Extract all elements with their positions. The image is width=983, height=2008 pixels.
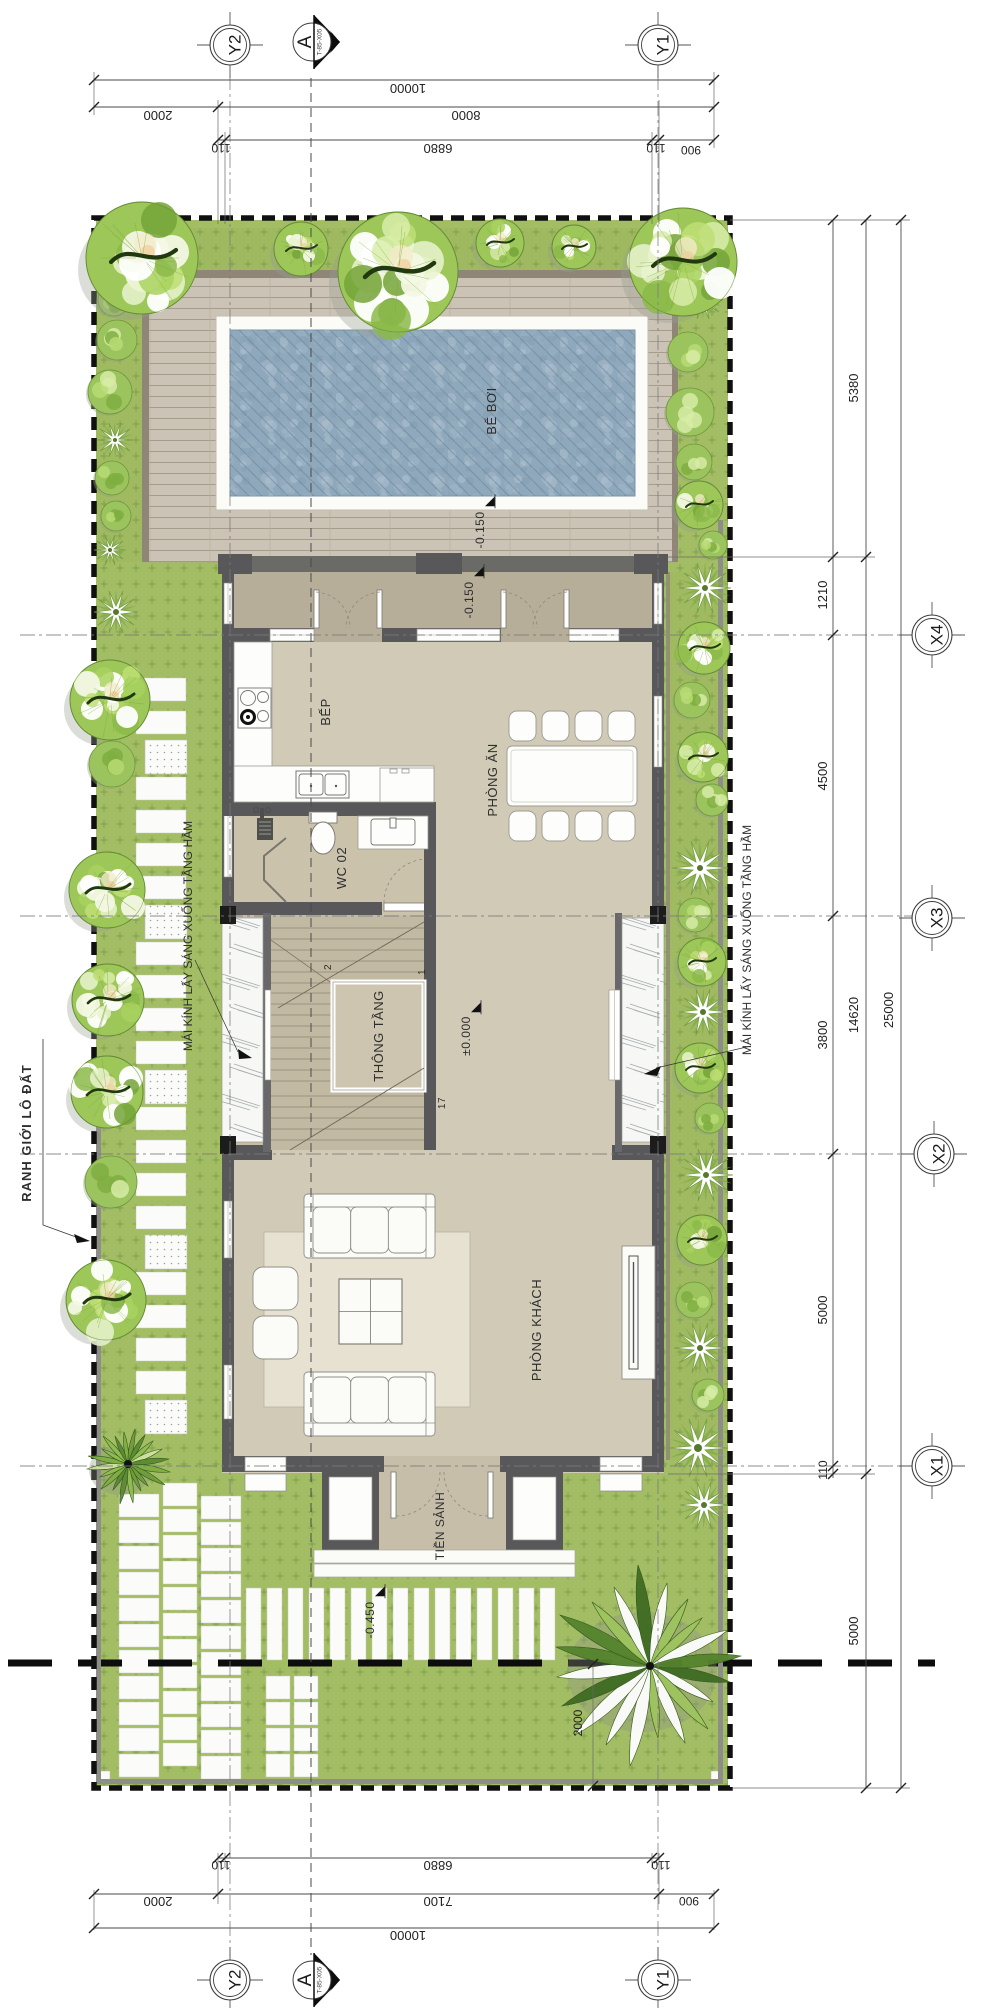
svg-text:Y1: Y1 [653, 1970, 672, 1991]
svg-text:RANH GIỚI LÔ ĐẤT: RANH GIỚI LÔ ĐẤT [19, 1064, 34, 1202]
svg-text:110: 110 [211, 1858, 230, 1872]
svg-text:10000: 10000 [390, 1928, 426, 1943]
svg-text:10000: 10000 [390, 81, 426, 96]
svg-text:A: A [295, 35, 316, 48]
svg-text:2000: 2000 [144, 108, 173, 123]
svg-text:2: 2 [323, 964, 334, 970]
svg-text:5380: 5380 [846, 374, 861, 403]
svg-text:2000: 2000 [571, 1709, 585, 1736]
svg-text:A: A [295, 1973, 316, 1986]
svg-text:110: 110 [816, 1460, 830, 1479]
svg-text:-0.150: -0.150 [462, 581, 476, 618]
svg-text:X2: X2 [929, 1144, 948, 1165]
svg-text:±0.000: ±0.000 [459, 1016, 473, 1056]
svg-text:Y1: Y1 [653, 35, 672, 56]
svg-text:110: 110 [211, 141, 230, 155]
svg-text:PHÒNG ĂN: PHÒNG ĂN [485, 743, 500, 816]
svg-text:1: 1 [417, 969, 428, 975]
svg-text:X4: X4 [927, 625, 946, 646]
svg-text:900: 900 [681, 143, 701, 157]
svg-text:PHÒNG KHÁCH: PHÒNG KHÁCH [529, 1279, 544, 1381]
svg-text:TIỀN SẢNH: TIỀN SẢNH [432, 1492, 447, 1561]
svg-text:-0.450: -0.450 [363, 1601, 377, 1638]
svg-text:110: 110 [651, 1858, 670, 1872]
svg-text:3800: 3800 [815, 1021, 830, 1050]
svg-text:MÁI KÍNH LẤY SÁNG XUỐNG TẦNG H: MÁI KÍNH LẤY SÁNG XUỐNG TẦNG HẦM [180, 821, 195, 1051]
svg-text:X1: X1 [927, 1456, 946, 1477]
svg-text:4500: 4500 [815, 762, 830, 791]
svg-text:6880: 6880 [424, 1858, 453, 1873]
svg-text:MÁI KÍNH LẤY SÁNG XUỐNG TẦNG H: MÁI KÍNH LẤY SÁNG XUỐNG TẦNG HẦM [739, 825, 754, 1055]
svg-text:14620: 14620 [846, 997, 861, 1033]
svg-text:BỂ BƠI: BỂ BƠI [484, 387, 499, 434]
svg-text:25000: 25000 [881, 992, 896, 1028]
svg-text:WC 02: WC 02 [334, 847, 349, 889]
svg-text:1210: 1210 [815, 581, 830, 610]
svg-text:6880: 6880 [424, 141, 453, 156]
svg-text:900: 900 [679, 1894, 699, 1908]
svg-text:THÔNG TẦNG: THÔNG TẦNG [371, 990, 386, 1081]
svg-text:8000: 8000 [452, 108, 481, 123]
svg-text:110: 110 [646, 141, 665, 155]
svg-text:7100: 7100 [424, 1894, 453, 1909]
svg-text:Y2: Y2 [225, 1970, 244, 1991]
svg-text:BẾP: BẾP [318, 698, 333, 726]
svg-text:-0.150: -0.150 [473, 511, 487, 548]
svg-text:Y2: Y2 [225, 35, 244, 56]
svg-text:5000: 5000 [846, 1617, 861, 1646]
svg-text:T-85-X05: T-85-X05 [317, 1966, 324, 1993]
svg-text:5000: 5000 [815, 1296, 830, 1325]
svg-text:X3: X3 [927, 908, 946, 929]
svg-text:2000: 2000 [144, 1894, 173, 1909]
svg-text:17: 17 [437, 1097, 448, 1109]
svg-text:T-85-X05: T-85-X05 [317, 28, 324, 55]
